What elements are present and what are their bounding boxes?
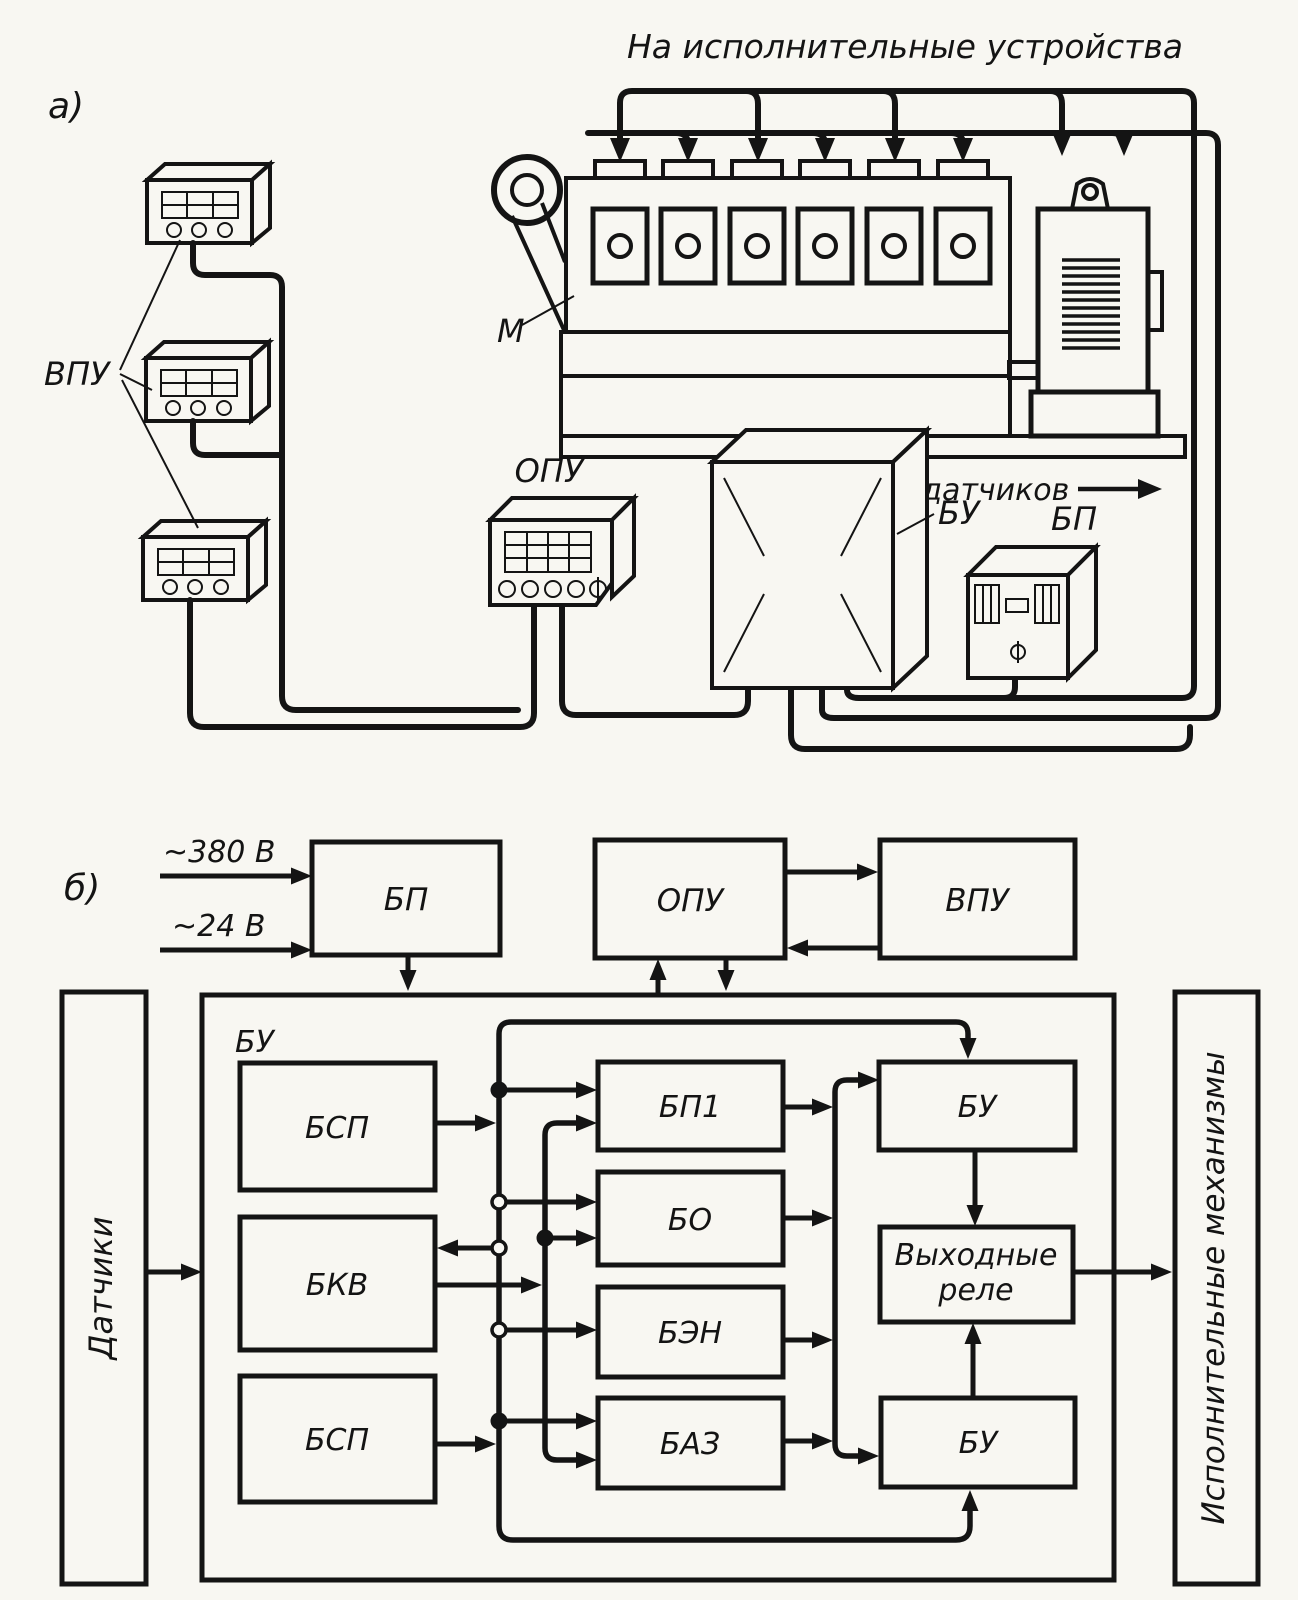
arrowhead xyxy=(576,1082,597,1099)
input-380v-label: ~380 В xyxy=(163,835,276,870)
junction-dot xyxy=(537,1230,554,1247)
arrowhead xyxy=(576,1194,597,1211)
vpu-panel-3 xyxy=(143,521,266,600)
arrowhead xyxy=(812,1433,833,1450)
arrowhead xyxy=(291,868,312,885)
pulley-wheel xyxy=(494,157,560,223)
arrowhead xyxy=(812,1332,833,1349)
vpu-label: ВПУ xyxy=(44,355,112,393)
wire-vpu2-trunk xyxy=(193,421,279,455)
arrowhead xyxy=(967,1205,984,1226)
pulley-hub xyxy=(512,175,542,205)
arrowhead xyxy=(1151,1264,1172,1281)
machine-tab xyxy=(938,161,988,178)
block-bo-label: БО xyxy=(668,1203,712,1238)
arrowhead xyxy=(812,1210,833,1227)
arrowhead xyxy=(576,1322,597,1339)
bu-cabinet xyxy=(712,430,927,688)
wire-bp-stub xyxy=(1004,678,1015,698)
diagram-canvas: а) На исполнительные устройства xyxy=(0,0,1298,1600)
arrowhead xyxy=(576,1230,597,1247)
vpu-panel-1 xyxy=(147,164,270,243)
machine-body xyxy=(566,178,1010,332)
arrowhead xyxy=(576,1452,597,1469)
section-b: б) ~380 В ~24 В БП ОПУ ВПУ Датчики Испол… xyxy=(62,835,1258,1584)
block-bsp1-label: БСП xyxy=(305,1111,369,1146)
input-24v-label: ~24 В xyxy=(172,909,265,944)
arrowhead xyxy=(858,1072,879,1089)
machine-tab xyxy=(869,161,919,178)
section-a-label: а) xyxy=(48,86,84,127)
bu-label: БУ xyxy=(938,494,982,532)
output-riser xyxy=(835,1080,860,1456)
block-bp-label: БП xyxy=(384,882,429,918)
section-b-label: б) xyxy=(64,868,100,909)
bp-label: БП xyxy=(1051,500,1097,538)
arrowhead xyxy=(962,1490,979,1511)
arrow-to-actuator xyxy=(610,138,630,162)
junction-ring xyxy=(492,1323,506,1337)
arrowhead xyxy=(965,1323,982,1344)
block-sensors-label: Датчики xyxy=(82,1216,120,1361)
arrowhead xyxy=(650,959,667,980)
machine-shelf xyxy=(561,332,1010,376)
arrow-to-actuator xyxy=(885,138,905,162)
block-baz-label: БАЗ xyxy=(660,1427,720,1462)
junction-dot xyxy=(491,1413,508,1430)
opu-label: ОПУ xyxy=(515,452,586,490)
arrow-to-actuator xyxy=(815,138,835,162)
arrow-to-actuator xyxy=(1114,132,1134,156)
from-sensors-arrowhead xyxy=(1138,479,1162,499)
section-a-title: На исполнительные устройства xyxy=(627,27,1183,66)
arrowhead xyxy=(521,1277,542,1294)
wire-vpu1-trunk xyxy=(193,243,518,710)
block-ben-label: БЭН xyxy=(658,1316,722,1351)
section-a: а) На исполнительные устройства xyxy=(44,27,1218,749)
block-bkv-label: БКВ xyxy=(306,1268,368,1303)
machine-base xyxy=(561,376,1010,436)
arrowhead xyxy=(858,1448,879,1465)
machine: М xyxy=(494,157,1185,457)
arrowhead xyxy=(475,1115,496,1132)
bp-unit xyxy=(968,547,1096,678)
arrowhead xyxy=(718,970,735,991)
arrowhead xyxy=(437,1240,458,1257)
arrowhead xyxy=(857,864,878,881)
block-bsp2-label: БСП xyxy=(305,1423,369,1458)
arrowhead xyxy=(181,1264,202,1281)
top-feedback-line xyxy=(511,1022,968,1042)
junction-ring xyxy=(492,1195,506,1209)
junction-ring xyxy=(492,1241,506,1255)
opu-console xyxy=(490,498,634,605)
shaft xyxy=(1009,362,1038,378)
machine-tab xyxy=(732,161,782,178)
arrowhead xyxy=(960,1038,977,1059)
machine-label: М xyxy=(497,312,525,350)
bus-b xyxy=(545,1123,578,1460)
junction-dot xyxy=(491,1082,508,1099)
arrowhead xyxy=(475,1436,496,1453)
arrowhead xyxy=(576,1413,597,1430)
block-bp1-label: БП1 xyxy=(659,1090,721,1125)
arrowhead xyxy=(576,1115,597,1132)
bu-container-label: БУ xyxy=(235,1025,276,1060)
block-bu-bottom-label: БУ xyxy=(959,1426,1000,1461)
block-opu-label: ОПУ xyxy=(657,883,726,919)
arrowhead xyxy=(812,1099,833,1116)
scanned-figure: а) На исполнительные устройства xyxy=(0,0,1298,1600)
motor-vents xyxy=(1062,260,1120,348)
arrow-to-actuator xyxy=(1052,132,1072,156)
vpu-panel-2 xyxy=(146,342,269,421)
block-bu-top-label: БУ xyxy=(958,1090,999,1125)
block-vpu-label: ВПУ xyxy=(945,883,1011,919)
arrowhead xyxy=(291,942,312,959)
machine-tab xyxy=(595,161,645,178)
arrowhead xyxy=(400,970,417,991)
arrowhead xyxy=(787,940,808,957)
arrow-to-actuator xyxy=(953,138,973,162)
block-relay-label-1: Выходные xyxy=(895,1238,1058,1273)
block-relay-label-2: реле xyxy=(937,1273,1013,1308)
arrow-to-actuator xyxy=(678,138,698,162)
machine-tab xyxy=(663,161,713,178)
arrow-to-actuator xyxy=(748,138,768,162)
machine-tab xyxy=(800,161,850,178)
motor xyxy=(1031,179,1162,436)
block-actuators-label: Исполнительные механизмы xyxy=(1196,1051,1232,1524)
